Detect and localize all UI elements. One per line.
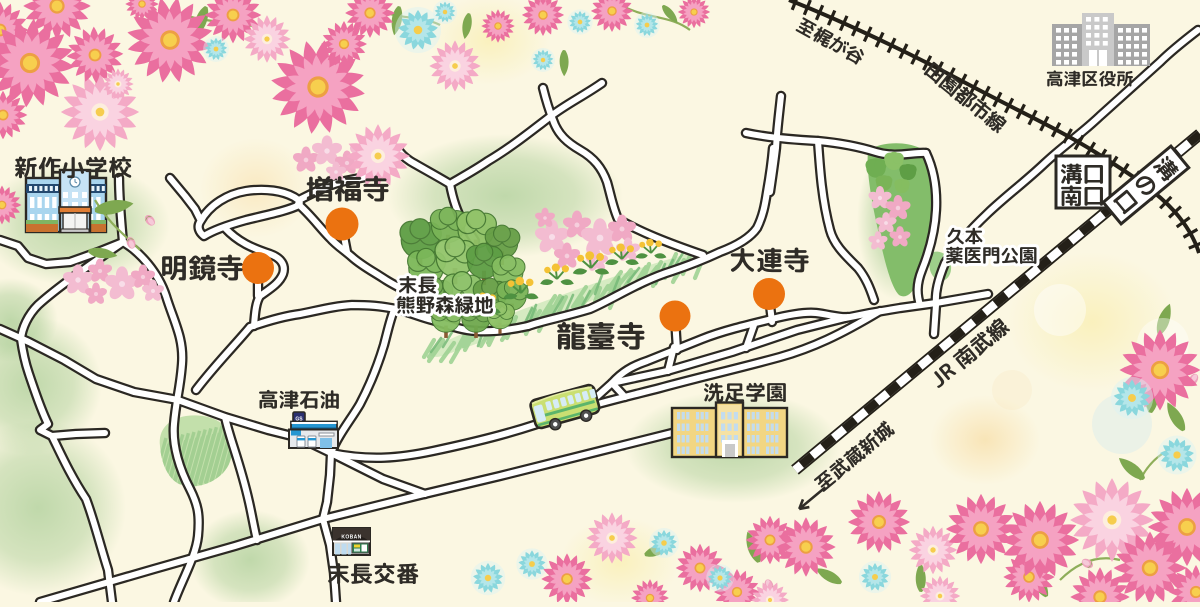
svg-text:KOBAN: KOBAN [341,535,361,541]
